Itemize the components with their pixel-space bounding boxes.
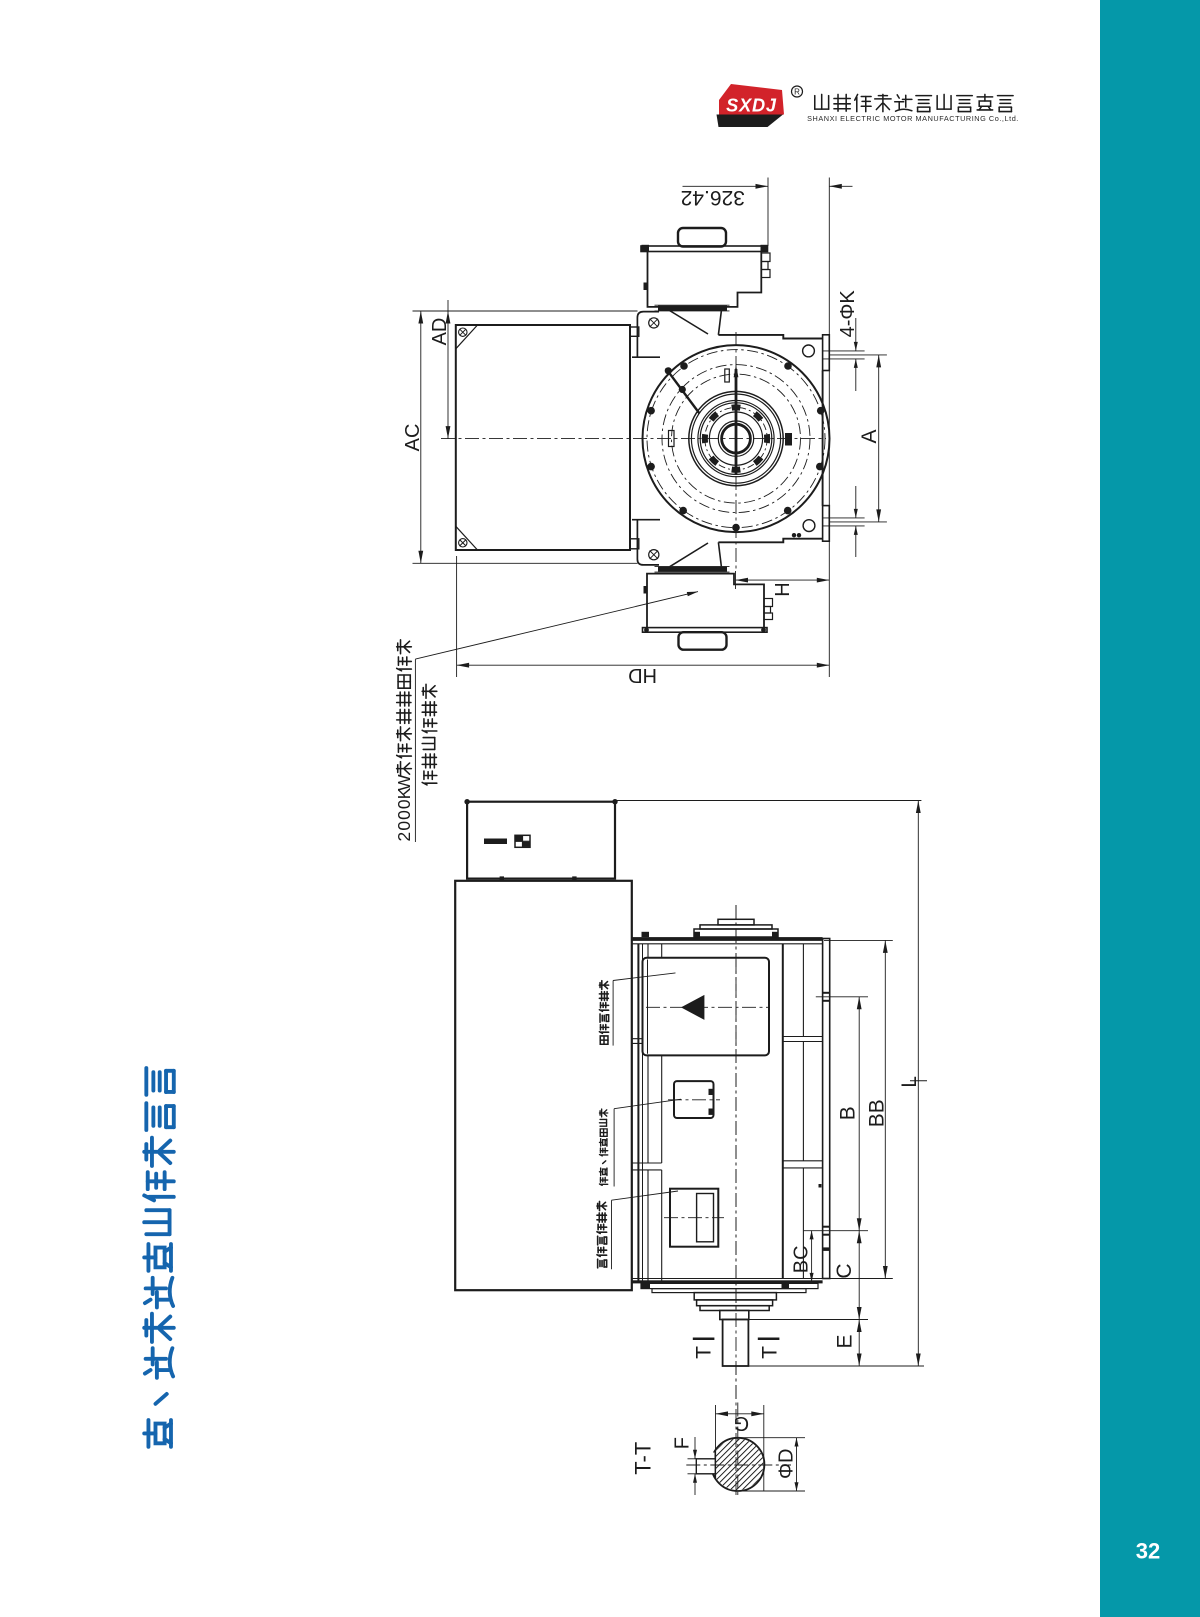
svg-text:0: 0 xyxy=(394,799,414,809)
svg-text:4-ΦK: 4-ΦK xyxy=(837,290,859,338)
svg-text:C: C xyxy=(833,1263,856,1278)
svg-text:0: 0 xyxy=(394,810,414,820)
svg-text:2: 2 xyxy=(394,832,414,842)
svg-text:T-T: T-T xyxy=(631,1442,656,1475)
svg-text:326.42: 326.42 xyxy=(681,186,745,209)
svg-text:H: H xyxy=(772,582,794,596)
svg-text:SXDJ: SXDJ xyxy=(726,96,777,116)
svg-text:T: T xyxy=(693,1346,716,1359)
svg-text:L: L xyxy=(898,1076,921,1088)
svg-text:AD: AD xyxy=(429,318,451,346)
svg-text:ΦD: ΦD xyxy=(775,1449,797,1479)
svg-text:E: E xyxy=(834,1334,857,1348)
svg-text:R: R xyxy=(794,88,800,97)
svg-text:T: T xyxy=(759,1346,782,1359)
svg-text:SHANXI ELECTRIC MOTOR MANUFACT: SHANXI ELECTRIC MOTOR MANUFACTURING Co.,… xyxy=(807,114,1019,123)
svg-text:B: B xyxy=(836,1106,859,1120)
svg-text:A: A xyxy=(858,429,881,443)
svg-text:AC: AC xyxy=(402,424,424,452)
svg-text:HD: HD xyxy=(628,664,657,686)
svg-text:BC: BC xyxy=(790,1245,812,1273)
svg-text:32: 32 xyxy=(1136,1539,1160,1564)
svg-text:G: G xyxy=(734,1412,750,1434)
svg-text:F: F xyxy=(672,1437,694,1449)
svg-text:0: 0 xyxy=(394,821,414,831)
svg-text:BB: BB xyxy=(865,1099,888,1127)
svg-text:W: W xyxy=(394,774,414,791)
